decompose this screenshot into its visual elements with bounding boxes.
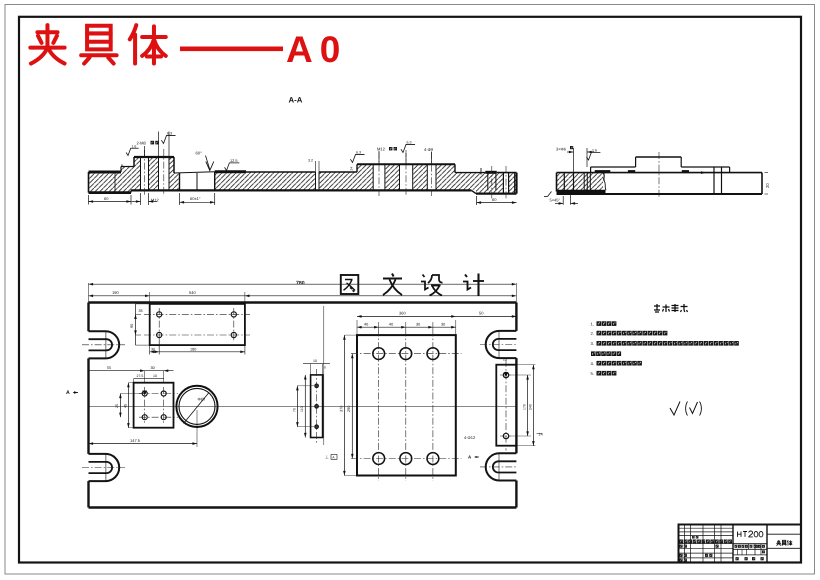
- svg-text:190: 190: [112, 290, 119, 295]
- svg-text:1.6: 1.6: [592, 148, 597, 152]
- svg-text:⊥: ⊥: [325, 455, 329, 460]
- svg-text:A: A: [66, 390, 70, 396]
- svg-text:A0: A0: [286, 29, 347, 70]
- svg-text:12.5: 12.5: [230, 158, 238, 163]
- svg-text:60: 60: [104, 196, 109, 201]
- svg-text:35: 35: [139, 309, 143, 313]
- svg-text:60±1°: 60±1°: [190, 196, 201, 201]
- svg-text:25: 25: [115, 404, 119, 408]
- svg-text:2-M8: 2-M8: [137, 141, 147, 146]
- svg-text:5×45°: 5×45°: [550, 198, 561, 203]
- svg-text:50: 50: [479, 311, 484, 316]
- svg-text:30: 30: [441, 323, 445, 327]
- svg-text:780: 780: [296, 280, 305, 286]
- svg-text:1.6: 1.6: [132, 144, 137, 148]
- svg-text:60°: 60°: [196, 151, 203, 156]
- svg-text:3.2: 3.2: [308, 159, 313, 163]
- svg-text:M12: M12: [377, 147, 386, 152]
- svg-text:30: 30: [151, 366, 155, 370]
- svg-text:1.: 1.: [591, 321, 595, 326]
- svg-text:10: 10: [313, 359, 317, 363]
- svg-text:4-Φ9: 4-Φ9: [424, 147, 434, 152]
- svg-text:60: 60: [492, 197, 497, 202]
- svg-text:M12: M12: [151, 198, 160, 203]
- svg-text:370: 370: [339, 406, 343, 412]
- svg-text:6.3: 6.3: [356, 150, 361, 154]
- svg-text:25: 25: [503, 358, 507, 362]
- svg-text:360: 360: [399, 311, 406, 316]
- svg-text:8: 8: [324, 365, 326, 369]
- svg-text:180: 180: [190, 347, 196, 351]
- svg-text:3.: 3.: [591, 341, 595, 346]
- svg-text:45: 45: [123, 404, 127, 408]
- svg-text:5.: 5.: [591, 371, 595, 376]
- svg-text:110: 110: [300, 406, 304, 412]
- svg-text:24: 24: [349, 167, 353, 171]
- svg-text:170: 170: [523, 404, 527, 410]
- svg-text:240: 240: [528, 404, 532, 410]
- svg-text:3×Φ6: 3×Φ6: [556, 147, 567, 152]
- svg-text:40: 40: [364, 323, 368, 327]
- svg-text:4.: 4.: [591, 361, 595, 366]
- svg-text:20: 20: [765, 183, 770, 188]
- svg-text:R: R: [121, 164, 124, 168]
- svg-text:2.: 2.: [591, 331, 595, 336]
- svg-text:6.3: 6.3: [167, 131, 172, 135]
- svg-text:Φ60: Φ60: [198, 397, 206, 402]
- svg-text:10: 10: [153, 374, 157, 378]
- svg-text:90: 90: [130, 324, 134, 328]
- svg-text:30: 30: [416, 323, 420, 327]
- svg-text:290: 290: [347, 406, 351, 412]
- svg-text:40: 40: [389, 323, 393, 327]
- svg-text:6.3: 6.3: [407, 140, 412, 144]
- svg-text:14: 14: [539, 433, 543, 437]
- svg-text:540: 540: [189, 290, 196, 295]
- svg-text:30: 30: [151, 347, 155, 351]
- svg-text:27.5: 27.5: [137, 374, 144, 378]
- svg-text:70: 70: [292, 408, 296, 412]
- svg-text:147.5: 147.5: [130, 438, 141, 443]
- svg-text:4-Φ12: 4-Φ12: [464, 435, 476, 440]
- svg-text:A-A: A-A: [289, 96, 303, 105]
- svg-text:55: 55: [107, 366, 111, 370]
